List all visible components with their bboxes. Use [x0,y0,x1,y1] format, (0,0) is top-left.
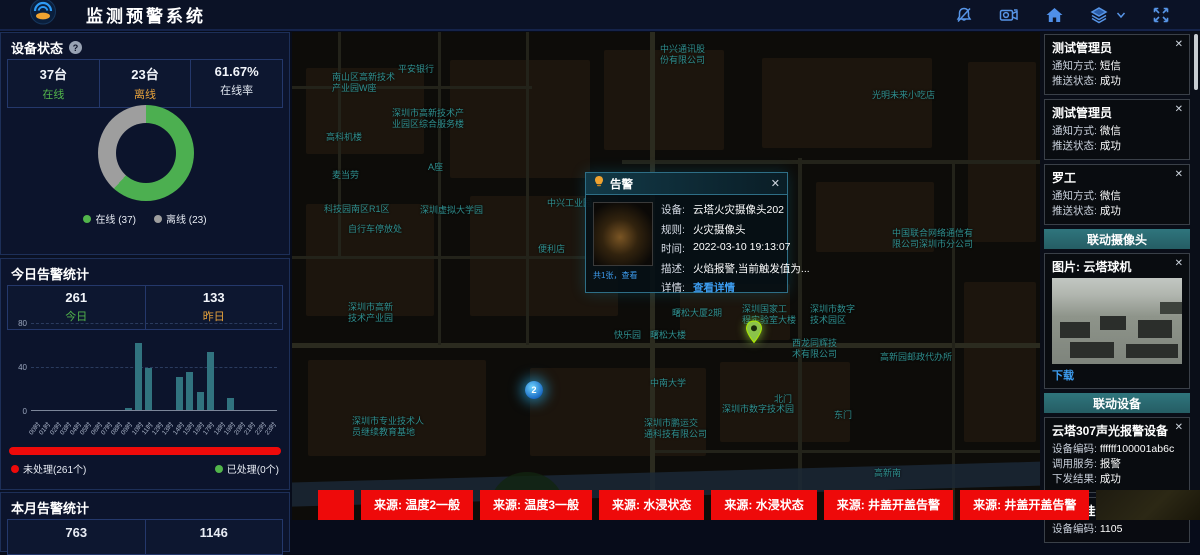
online-rate: 61.67% [191,64,282,79]
alert-popup-title: 告警 [610,176,633,192]
photo-detail [1126,344,1178,358]
bar [145,368,152,410]
offline-label: 离线 [100,86,191,102]
map-label: 深圳虚拟大学园 [420,205,483,216]
field-label: 设备: [661,202,693,217]
map-label: 北门 [774,394,792,405]
chevron-down-icon[interactable] [1116,10,1126,20]
row-label: 调用服务: [1052,458,1097,470]
alert-popup-body: 共1张，查看 设备: 云塔火灾摄像头202 规则: 火灾摄像头 时间: 2022… [586,195,787,300]
notify-name: 测试管理员 [1052,104,1182,121]
close-icon[interactable]: ✕ [1175,39,1183,50]
photo-detail [1070,342,1114,358]
alert-field-time: 时间: 2022-03-10 19:13:07 [661,241,810,256]
map-road [622,160,1040,164]
unhandled-legend: 未处理(261个) [11,461,86,476]
device-status-title-text: 设备状态 [11,38,63,57]
yesterday-label: 昨日 [146,308,283,324]
online-rate-label: 在线率 [191,82,282,98]
field-label: 描述: [661,261,693,276]
bar-slot [226,398,236,410]
map-label: 自行车停放处 [348,224,402,235]
map-label: 深圳市高新技术产 业园区综合服务楼 [392,108,464,130]
notification-card: 测试管理员 ✕ 通知方式: 微信 推送状态: 成功 [1044,99,1190,160]
y-tick-40: 40 [11,363,27,372]
map-label: 中国联合网络通信有 限公司深圳市分公司 [892,228,973,250]
map-label: 麦当劳 [332,170,359,181]
map-label: 中兴通讯股 份有限公司 [660,44,705,66]
map-label: 曙松大厦2期 [672,308,722,319]
row-value: ffffff100001ab6c [1100,443,1174,455]
map-label: 南山区高新技术 产业园W座 [332,72,395,94]
alarm-lamp-icon [593,175,605,193]
ticker-alert-item[interactable]: 来源: 井盖开盖告警 [960,490,1089,520]
map-label: 科技园南区R1区 [324,204,390,215]
map-label: 高新园邮政代办所 [880,352,952,363]
row-label: 下发结果: [1052,473,1097,485]
ticker-alert-item[interactable] [318,490,354,520]
notify-status-row: 推送状态: 成功 [1052,74,1182,89]
map-label: 曙松大楼 [650,330,686,341]
status-value: 成功 [1100,205,1121,217]
close-icon[interactable]: ✕ [1175,422,1183,433]
map-label: 深圳市专业技术人 员继续教育基地 [352,416,424,438]
legend-offline-text: 离线 (23) [166,215,207,226]
video-camera-icon[interactable] [999,6,1019,24]
stat-offline: 23台 离线 [99,60,191,107]
map-label: 高科机楼 [326,132,362,143]
bar-slot [185,372,195,410]
alert-field-desc: 描述: 火焰报警,当前触发值为... [661,261,810,276]
alert-fields: 设备: 云塔火灾摄像头202 规则: 火灾摄像头 时间: 2022-03-10 … [661,202,810,300]
hourly-bar-chart: 80 40 0 00时01时02时03时04时05时06时07时08时09时10… [9,323,281,441]
y-tick-0: 0 [11,407,27,416]
legend-online-dot [83,215,91,223]
map-building [308,360,486,456]
field-value: 火灾摄像头 [693,222,746,237]
device-status-table: 37台 在线 23台 离线 61.67% 在线率 [7,59,283,108]
help-icon[interactable]: ? [69,41,82,54]
map-road [652,450,1040,453]
field-value: 云塔火灾摄像头202 [693,202,784,217]
bar [227,398,234,410]
notify-method-row: 通知方式: 微信 [1052,124,1182,139]
month-value-2: 1146 [145,520,283,554]
map-label: 东门 [834,410,852,421]
field-label: 详情: [661,280,693,295]
photo-detail [1138,320,1172,338]
method-value: 微信 [1100,125,1121,137]
ticker-alert-item[interactable]: 来源: 水浸状态 [599,490,704,520]
today-count: 261 [8,290,145,305]
ticker-alert-item[interactable]: 来源: 水浸状态 [711,490,816,520]
map-label: 快乐园 [614,330,641,341]
status-value: 成功 [1100,140,1121,152]
device-status-title: 设备状态 ? [11,38,82,57]
progress-legend: 未处理(261个) 已处理(0个) [11,461,279,476]
notification-card: 罗工 ✕ 通知方式: 微信 推送状态: 成功 [1044,164,1190,225]
row-value: 成功 [1100,473,1121,485]
map-label: 平安银行 [398,64,434,75]
field-label: 时间: [661,241,693,256]
camera-snapshot-image[interactable] [1052,278,1182,364]
bell-off-icon[interactable] [955,6,973,24]
online-count: 37台 [8,64,99,83]
row-value: 1105 [1100,523,1123,535]
scrollbar-thumb[interactable] [1194,34,1198,90]
camera-image-label: 图片: 云塔球机 [1052,258,1182,275]
notify-name: 罗工 [1052,169,1182,186]
bar-slot [175,377,185,410]
bar [135,343,142,410]
bar-slot [195,392,205,410]
ticker-thumbnail[interactable] [1096,490,1200,520]
map-label: 深圳市高新 技术产业园 [348,302,393,324]
bar-slot [123,408,133,410]
x-axis-line [31,410,277,411]
unhandled-text: 未处理(261个) [23,465,86,476]
method-label: 通知方式: [1052,190,1097,202]
notification-card: 测试管理员 ✕ 通知方式: 短信 推送状态: 成功 [1044,34,1190,95]
map-road [292,86,532,89]
close-icon[interactable]: ✕ [1175,258,1183,269]
alert-popup: 告警 ✕ 共1张，查看 设备: 云塔火灾摄像头202 规则: 火灾摄像头 时间: [585,172,788,293]
device-donut-legend: 在线 (37) 离线 (23) [1,211,289,226]
legend-offline: 离线 (23) [154,211,207,226]
method-label: 通知方式: [1052,125,1097,137]
layers-icon[interactable] [1090,6,1108,24]
download-link[interactable]: 下载 [1052,367,1182,383]
method-label: 通知方式: [1052,60,1097,72]
alert-ticker: 来源: 温度2一般来源: 温度3一般来源: 水浸状态来源: 水浸状态来源: 井盖… [292,490,1200,520]
today-alarm-title: 今日告警统计 [11,264,89,283]
status-label: 推送状态: [1052,205,1097,217]
device-status-panel: 设备状态 ? 37台 在线 23台 离线 61.67% 在线率 在线 (37) … [0,32,290,255]
map-pin-marker[interactable] [745,320,763,349]
close-icon[interactable]: ✕ [771,177,780,190]
device-service-row: 调用服务: 报警 [1052,457,1182,472]
app-logo-icon [28,0,58,31]
today-alarm-panel: 今日告警统计 261 今日 133 昨日 80 40 0 00时01时02时03 [0,258,290,490]
home-icon[interactable] [1045,6,1064,24]
map-label: 深圳市鹏运交 通科技有限公司 [644,418,707,440]
app-header: 监测预警系统 [0,0,1200,31]
unhandled-dot [11,465,19,473]
map-building [306,204,434,316]
bar-chart-plot: 80 40 0 [31,323,277,411]
notify-name: 测试管理员 [1052,39,1182,56]
x-label-slot: 23时 [267,415,277,439]
stat-online-rate: 61.67% 在线率 [190,60,282,107]
y-tick-80: 80 [11,319,27,328]
right-sidebar: 测试管理员 ✕ 通知方式: 短信 推送状态: 成功 测试管理员 ✕ 通知方式: … [1040,32,1200,520]
map-label: 中南大学 [650,378,686,389]
handled-legend: 已处理(0个) [215,461,279,476]
month-alarm-title: 本月告警统计 [11,498,89,517]
bar [197,392,204,410]
device-card: 云塔307声光报警设备 ✕ 设备编码: ffffff100001ab6c 调用服… [1044,417,1190,493]
map-building [964,282,1036,442]
status-label: 推送状态: [1052,140,1097,152]
bar-slot [134,343,144,410]
row-label: 设备编码: [1052,443,1097,455]
map-label: 深圳市数字 技术园区 [810,304,855,326]
fullscreen-icon[interactable] [1152,6,1170,24]
bar [125,408,132,410]
alert-field-rule: 规则: 火灾摄像头 [661,222,810,237]
bar [207,352,214,410]
map-canvas[interactable]: 中兴通讯股 份有限公司南山区高新技术 产业园W座平安银行深圳市高新技术产 业园区… [292,32,1040,520]
close-icon[interactable]: ✕ [1175,169,1183,180]
map-label: 高新南 [874,468,901,479]
ticker-alert-item[interactable]: 来源: 井盖开盖告警 [824,490,953,520]
camera-card: 图片: 云塔球机 ✕ 下载 [1044,253,1190,389]
handled-dot [215,465,223,473]
device-code-row: 设备编码: ffffff100001ab6c [1052,442,1182,457]
yesterday-count: 133 [146,290,283,305]
row-value: 报警 [1100,458,1121,470]
linked-camera-header: 联动摄像头 [1044,229,1190,249]
method-value: 短信 [1100,60,1121,72]
month-alarm-title-text: 本月告警统计 [11,498,89,517]
map-building [968,62,1036,242]
left-sidebar: 设备状态 ? 37台 在线 23台 离线 61.67% 在线率 在线 (37) … [0,32,290,520]
month-value-1: 763 [8,520,145,554]
alert-thumb-caption[interactable]: 共1张，查看 [593,270,653,281]
notify-method-row: 通知方式: 微信 [1052,189,1182,204]
device-result-row: 下发结果: 成功 [1052,472,1182,487]
alert-field-detail: 详情: 查看详情 [661,280,810,295]
close-icon[interactable]: ✕ [1175,104,1183,115]
status-value: 成功 [1100,75,1121,87]
map-label: 光明未来小吃店 [872,90,935,101]
device-code-row: 设备编码: 1105 [1052,522,1182,537]
map-road [338,32,341,256]
today-label: 今日 [8,308,145,324]
map-building [762,58,932,148]
map-label: 深圳市数字技术园 [722,404,794,415]
map-cluster-marker[interactable]: 2 [525,381,543,399]
notify-status-row: 推送状态: 成功 [1052,204,1182,219]
stat-online: 37台 在线 [8,60,99,107]
map-label: 便利店 [538,244,565,255]
legend-offline-dot [154,215,162,223]
map-road [292,343,1040,348]
bar-slot [205,352,215,410]
device-name: 云塔307声光报警设备 [1052,422,1182,439]
map-label: 西龙同辉技 术有限公司 [792,338,837,360]
offline-count: 23台 [100,64,191,83]
status-label: 推送状态: [1052,75,1097,87]
bar-series [31,323,277,410]
bar [186,372,193,410]
alert-field-device: 设备: 云塔火灾摄像头202 [661,202,810,217]
map-building [450,60,590,178]
notify-status-row: 推送状态: 成功 [1052,139,1182,154]
bar-slot [144,368,154,410]
today-alarm-title-text: 今日告警统计 [11,264,89,283]
row-label: 设备编码: [1052,523,1097,535]
page-title: 监测预警系统 [86,2,206,27]
legend-online-text: 在线 (37) [95,215,136,226]
linked-device-header: 联动设备 [1044,393,1190,413]
field-value: 火焰报警,当前触发值为... [693,261,810,276]
map-label: A座 [428,162,443,173]
photo-detail [1160,302,1182,314]
bar [176,377,183,410]
ticker-alert-item[interactable]: 来源: 温度2一般 [361,490,473,520]
photo-detail [1060,322,1090,338]
month-alarm-table: 763 1146 [7,519,283,555]
alert-snapshot-image[interactable] [593,202,653,266]
ticker-alert-item[interactable]: 来源: 温度3一般 [480,490,592,520]
view-detail-link[interactable]: 查看详情 [693,280,735,295]
notify-method-row: 通知方式: 短信 [1052,59,1182,74]
field-value: 2022-03-10 19:13:07 [693,241,791,256]
handled-text: 已处理(0个) [227,465,279,476]
map-road [526,32,529,345]
field-label: 规则: [661,222,693,237]
online-label: 在线 [8,86,99,102]
alert-popup-header: 告警 ✕ [586,173,787,195]
photo-detail [1100,316,1126,330]
legend-online: 在线 (37) [83,211,136,226]
month-alarm-panel: 本月告警统计 763 1146 [0,492,290,552]
map-road [438,32,441,345]
device-donut-chart [98,105,194,201]
bar-chart-x-labels: 00时01时02时03时04时05时06时07时08时09时10时11时12时1… [31,415,277,439]
alert-thumb-wrap: 共1张，查看 [593,202,653,300]
unhandled-progress-bar [9,447,281,455]
method-value: 微信 [1100,190,1121,202]
